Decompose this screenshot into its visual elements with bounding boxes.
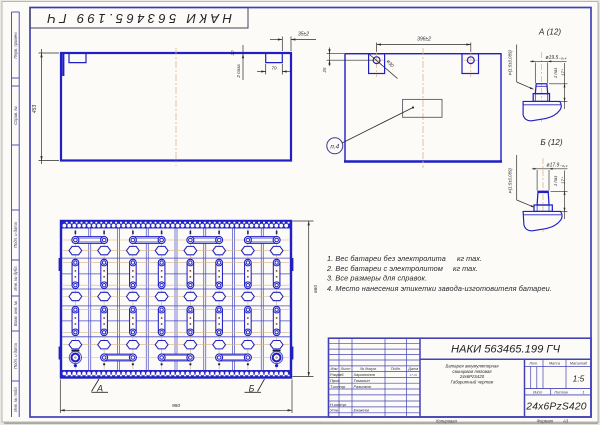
- svg-text:Листов: Листов: [553, 390, 568, 394]
- svg-text:НАКИ 563465.199 ГЧ: НАКИ 563465.199 ГЧ: [451, 344, 561, 356]
- svg-text:Инв. № подл.: Инв. № подл.: [13, 386, 18, 411]
- svg-text:Масштаб: Масштаб: [570, 362, 588, 366]
- svg-text:1: 1: [582, 390, 584, 394]
- svg-text:Масса: Масса: [549, 362, 560, 366]
- svg-text:Томилин: Томилин: [354, 378, 371, 383]
- svg-text:Енакеев: Енакеев: [354, 408, 370, 413]
- svg-text:Взам. инв. №: Взам. инв. №: [13, 300, 18, 326]
- svg-text:Лист: Лист: [532, 390, 543, 394]
- svg-text:Перв. примен.: Перв. примен.: [13, 31, 18, 58]
- svg-text:2 паза: 2 паза: [236, 64, 241, 79]
- svg-text:НАКИ 563465.199 ГЧ: НАКИ 563465.199 ГЧ: [44, 11, 232, 26]
- svg-text:А (12): А (12): [538, 27, 562, 36]
- svg-text:Изм: Изм: [330, 367, 337, 371]
- svg-text:Н.контр.: Н.контр.: [330, 402, 347, 407]
- svg-text:Дата: Дата: [407, 367, 418, 371]
- svg-text:Разинков: Разинков: [354, 384, 371, 389]
- svg-text:396±2: 396±2: [417, 37, 431, 43]
- svg-text:п.4: п.4: [330, 143, 339, 150]
- svg-text:кг mах.: кг mах.: [453, 264, 478, 273]
- svg-text:35±2: 35±2: [298, 31, 309, 37]
- svg-text:⊳(1:5±0,089): ⊳(1:5±0,089): [508, 168, 513, 194]
- svg-text:Подп. и дата: Подп. и дата: [13, 221, 18, 247]
- svg-text:ø17.9₋₀,₄: ø17.9₋₀,₄: [547, 163, 568, 169]
- svg-text:Т.контр.: Т.контр.: [330, 384, 346, 389]
- svg-text:Батарея аккумуляторная: Батарея аккумуляторная: [445, 363, 499, 368]
- svg-text:кг mах.: кг mах.: [457, 254, 482, 263]
- svg-text:17⁺: 17⁺: [560, 68, 565, 76]
- svg-text:Формат: Формат: [537, 419, 554, 424]
- svg-text:Габаритный чертеж: Габаритный чертеж: [451, 380, 495, 385]
- svg-text:2. Вес батареи с электролитом: 2. Вес батареи с электролитом: [326, 264, 443, 273]
- svg-text:Б (12): Б (12): [540, 138, 562, 147]
- svg-text:24x6PzS420: 24x6PzS420: [459, 374, 485, 379]
- svg-text:1 паз: 1 паз: [553, 176, 558, 186]
- svg-text:30: 30: [230, 50, 235, 56]
- svg-text:ø19.5₋₀,₄: ø19.5₋₀,₄: [546, 55, 567, 61]
- svg-text:№ докум.: № докум.: [360, 367, 377, 371]
- svg-text:70: 70: [271, 66, 277, 71]
- svg-text:свинцовая тяговая: свинцовая тяговая: [452, 369, 492, 374]
- svg-text:Копировал: Копировал: [436, 419, 457, 424]
- svg-text:1 паз: 1 паз: [553, 68, 558, 78]
- svg-text:Инв. № дубл.: Инв. № дубл.: [13, 265, 18, 290]
- svg-text:1. Вес батареи без электролита: 1. Вес батареи без электролита: [327, 254, 446, 263]
- svg-text:4. Место нанесения этикетки за: 4. Место нанесения этикетки завода-изгот…: [327, 284, 552, 293]
- svg-text:3. Все размеры для справок.: 3. Все размеры для справок.: [327, 274, 427, 283]
- svg-text:Справ. №: Справ. №: [13, 106, 18, 125]
- svg-text:Лист: Лист: [340, 367, 351, 371]
- svg-text:Утв.: Утв.: [330, 408, 339, 413]
- svg-text:24x6PzS420: 24x6PzS420: [525, 402, 586, 413]
- svg-text:⊳(1:5±0,089): ⊳(1:5±0,089): [508, 50, 513, 76]
- svg-text:Пров.: Пров.: [330, 378, 341, 383]
- svg-text:А3: А3: [562, 419, 569, 424]
- svg-text:980: 980: [172, 403, 180, 409]
- svg-text:Разраб.: Разраб.: [330, 372, 344, 377]
- svg-text:660: 660: [313, 285, 319, 293]
- svg-text:Подп.: Подп.: [391, 367, 401, 371]
- svg-text:Лит.: Лит.: [528, 362, 538, 366]
- svg-text:Подп. и дата: Подп. и дата: [13, 342, 18, 368]
- svg-text:25: 25: [322, 67, 327, 74]
- svg-text:17⁺: 17⁺: [560, 176, 565, 184]
- svg-text:453: 453: [32, 105, 38, 114]
- svg-text:Харитонов: Харитонов: [353, 372, 375, 377]
- svg-text:1:5: 1:5: [573, 374, 585, 384]
- svg-text:17.01: 17.01: [410, 373, 418, 377]
